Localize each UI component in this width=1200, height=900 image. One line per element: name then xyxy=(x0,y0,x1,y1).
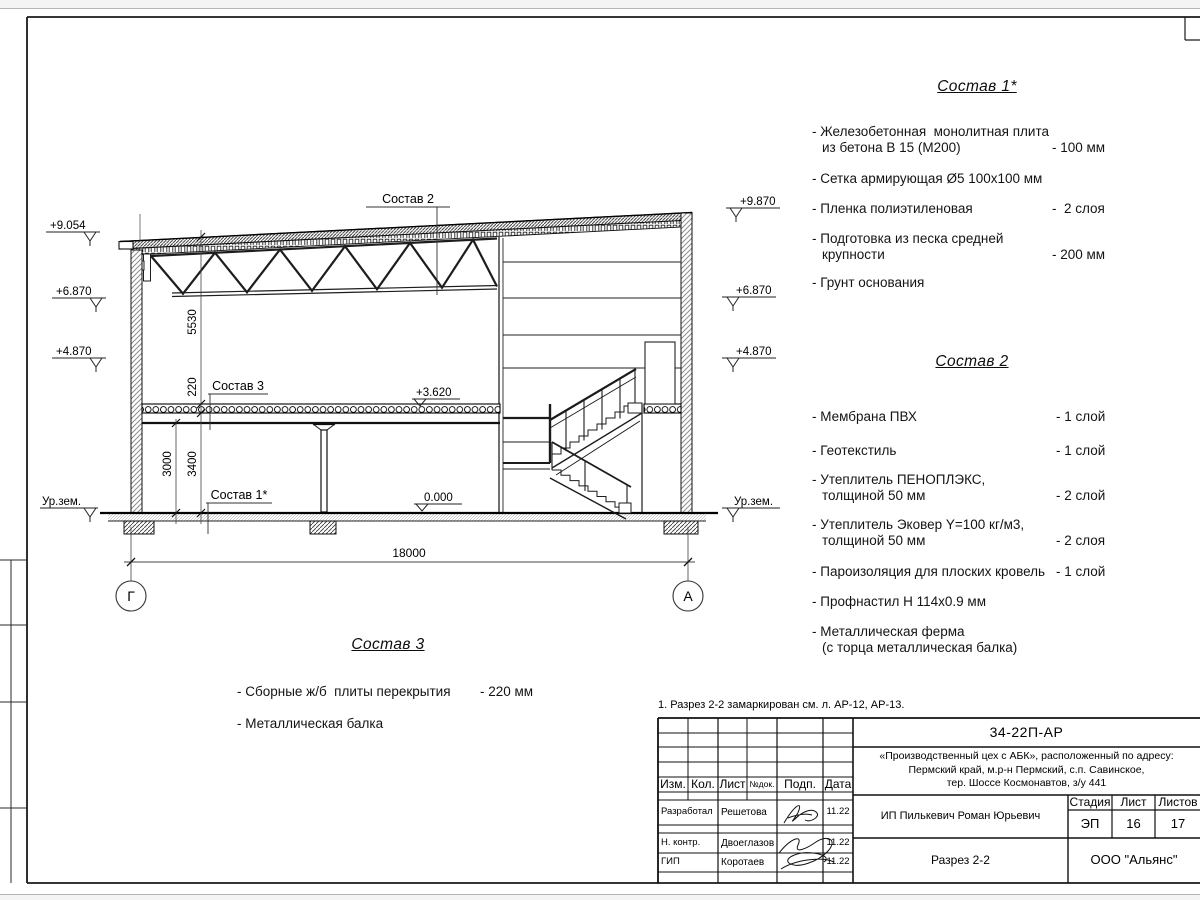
elevation-value: +9.054 xyxy=(50,220,86,232)
label-sostav2: Состав 2 xyxy=(382,192,434,206)
col-header-data: Дата xyxy=(823,777,853,793)
elevation-marks-left xyxy=(40,232,106,522)
roof-edge-cap xyxy=(119,242,133,250)
row-date: 11.22 xyxy=(823,853,853,872)
list-item: - Металлическая балка xyxy=(237,716,597,732)
composition-leaders xyxy=(206,207,450,534)
row-date: 11.22 xyxy=(823,833,853,853)
col-header-kol: Кол. xyxy=(688,777,718,793)
dim-truss-height: 5530 xyxy=(187,309,199,335)
ground-level-label: Ур.зем. xyxy=(42,496,81,508)
level-value: +3.620 xyxy=(416,387,452,399)
col-header-izm: Изм. xyxy=(658,777,688,793)
row-name: Решетова xyxy=(721,800,777,825)
dim-slab-thickness: 220 xyxy=(187,377,199,396)
dim-span: 18000 xyxy=(392,546,426,560)
vertical-dimensions xyxy=(172,230,205,524)
item-value: - 1 слой xyxy=(1056,409,1105,425)
axis-letter: А xyxy=(683,588,693,604)
item-value: - 220 мм xyxy=(480,684,533,700)
row-name: Двоеглазов xyxy=(721,833,777,853)
list-item: - Геотекстиль - 1 слой xyxy=(812,443,1172,459)
signature xyxy=(784,806,818,823)
sheet-note: 1. Разрез 2-2 замаркирован см. л. АР-12,… xyxy=(658,699,904,711)
sheets-label: Листов xyxy=(1155,795,1200,810)
list-item: - Пленка полиэтиленовая - 2 слоя xyxy=(812,201,1172,217)
client-name: ИП Пилькевич Роман Юрьевич xyxy=(853,795,1068,838)
list-item: - Сборные ж/б плиты перекрытия - 220 мм xyxy=(237,684,597,700)
item-value: - 1 слой xyxy=(1056,443,1105,459)
row-role: ГИП xyxy=(661,853,717,872)
left-margin-strip xyxy=(0,560,27,883)
truss-support xyxy=(144,254,151,281)
composition-2-title: Состав 2 xyxy=(812,353,1132,371)
right-wall xyxy=(681,213,692,513)
elevation-value: +6.870 xyxy=(736,285,772,297)
row-role: Разработал xyxy=(661,800,717,825)
list-item: - Профнастил Н 114х0.9 мм xyxy=(812,594,1172,610)
list-item: - Пароизоляция для плоских кровель - 1 с… xyxy=(812,564,1172,580)
lower-railing xyxy=(552,442,631,487)
elevation-marks-right xyxy=(722,208,780,522)
composition-1-title: Состав 1* xyxy=(812,78,1142,96)
ground-level-label: Ур.зем. xyxy=(734,496,773,508)
list-item: - Металлическая ферма (с торца металличе… xyxy=(812,624,1172,656)
foundation xyxy=(310,521,336,534)
dim-3400: 3400 xyxy=(187,451,199,477)
item-value: - 200 мм xyxy=(1052,247,1105,263)
staircase xyxy=(503,369,642,519)
foundation xyxy=(124,521,154,534)
row-date: 11.22 xyxy=(823,800,853,825)
sheets-total: 17 xyxy=(1155,810,1200,838)
row-name: Коротаев xyxy=(721,853,777,872)
project-description: «Производственный цех с АБК», расположен… xyxy=(853,750,1200,791)
item-value: - 2 слоя xyxy=(1056,533,1105,549)
company-name: ООО "Альянс" xyxy=(1068,838,1200,883)
list-item: - Сетка армирующая Ø5 100х100 мм xyxy=(812,171,1172,187)
composition-3-title: Состав 3 xyxy=(228,636,548,654)
elevation-value: +4.870 xyxy=(736,346,772,358)
foundation xyxy=(664,521,698,534)
axis-letter: Г xyxy=(127,588,135,604)
level-value: 0.000 xyxy=(424,492,453,504)
drawing-sheet: Состав 2 Состав 3 Состав 1* +9.054 +6.87… xyxy=(0,0,1200,900)
stage-label: Стадия xyxy=(1068,795,1112,810)
item-value: - 2 слой xyxy=(1056,488,1105,504)
elevation-value: +9.870 xyxy=(740,196,776,208)
item-value: - 2 слоя xyxy=(1052,201,1105,217)
label-sostav3: Состав 3 xyxy=(212,379,264,393)
stage-value: ЭП xyxy=(1068,810,1112,838)
sheet-label: Лист xyxy=(1112,795,1155,810)
corner-box xyxy=(1185,17,1200,40)
list-item: - Подготовка из песка средней крупности … xyxy=(812,231,1172,263)
list-item: - Грунт основания xyxy=(812,275,1172,291)
label-sostav1: Состав 1* xyxy=(211,488,268,502)
drawing-title: Разрез 2-2 xyxy=(853,838,1068,883)
list-item: - Мембрана ПВХ - 1 слой xyxy=(812,409,1172,425)
item-value: - 1 слой xyxy=(1056,564,1105,580)
col-header-list: Лист xyxy=(718,777,747,793)
list-item: - Железобетонная монолитная плита из бет… xyxy=(812,124,1172,156)
elevation-value: +6.870 xyxy=(56,286,92,298)
door-opening xyxy=(645,342,675,404)
elevation-value: +4.870 xyxy=(56,346,92,358)
sheet-number: 16 xyxy=(1112,810,1155,838)
left-wall xyxy=(131,250,142,513)
col-header-ndoc: №док. xyxy=(747,777,777,793)
ground xyxy=(100,513,718,534)
list-item: - Утеплитель ПЕНОПЛЭКС, толщиной 50 мм -… xyxy=(812,472,1172,504)
dim-3000: 3000 xyxy=(162,451,174,477)
col-header-podp: Подп. xyxy=(777,777,823,793)
row-role: Н. контр. xyxy=(661,833,717,853)
list-item: - Утеплитель Эковер Y=100 кг/м3, толщино… xyxy=(812,517,1172,549)
floor-slab xyxy=(142,404,681,423)
document-number: 34-22П-АР xyxy=(853,718,1200,747)
column xyxy=(313,424,335,512)
item-value: - 100 мм xyxy=(1052,140,1105,156)
grid-axes: Г А xyxy=(116,581,703,611)
